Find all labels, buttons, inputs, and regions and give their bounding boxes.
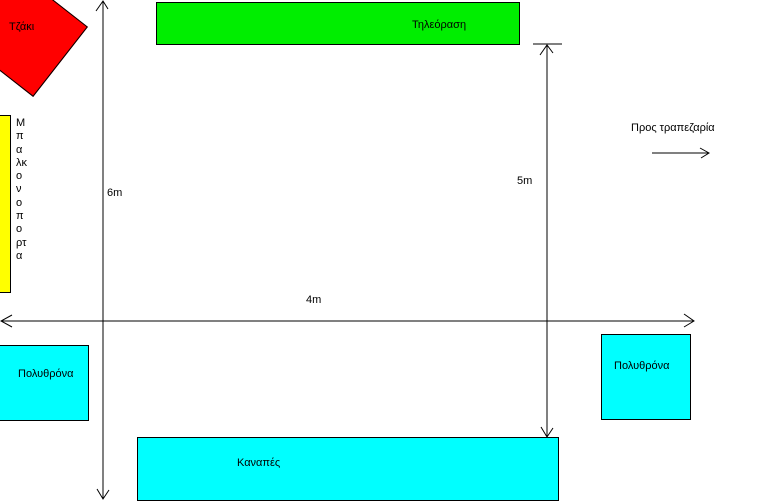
to-dining-arrow (652, 148, 709, 158)
dimension-arrow-6m (96, 1, 109, 499)
dimension-lines (0, 0, 764, 503)
dimension-arrow-5m (533, 44, 562, 437)
dimension-arrow-4m (1, 314, 694, 327)
room-layout-diagram: Τζάκι Τηλεόραση Μπαλκονοπορτα Πολυθρόνα … (0, 0, 764, 503)
